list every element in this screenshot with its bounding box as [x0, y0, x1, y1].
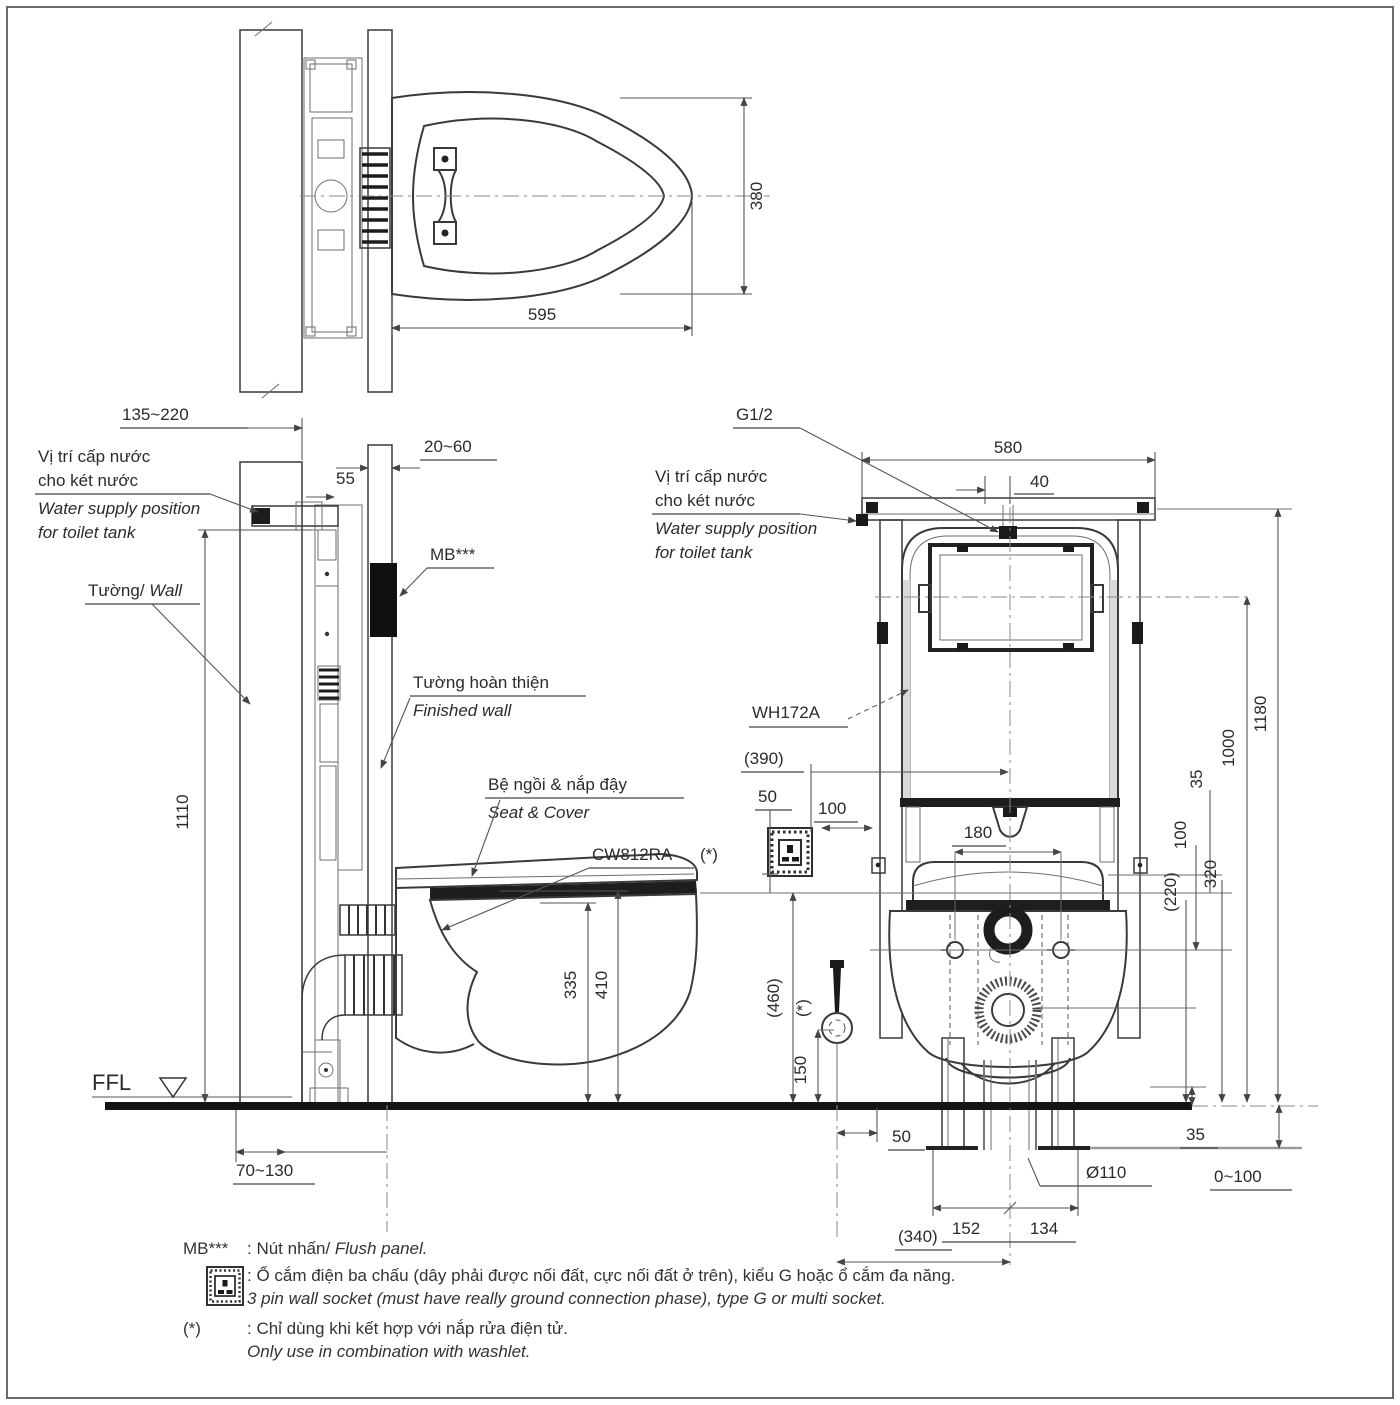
stop-valve [822, 960, 852, 1105]
dim-410: 410 [592, 971, 611, 999]
legend-mb-def-vi: : Nút nhấn/ [247, 1239, 335, 1258]
dim-220: (220) [1161, 872, 1180, 912]
dim-380: 380 [747, 182, 766, 210]
legend-mb-def: : Nút nhấn/ Flush panel. [247, 1238, 1263, 1261]
legend-mb-term: MB*** [183, 1238, 247, 1261]
model-wh172a: WH172A [752, 703, 821, 722]
water-supply-label-side-vi2: cho két nước [38, 471, 139, 490]
wall-break-marks [255, 22, 279, 398]
dim-35-floor: 35 [1186, 1125, 1205, 1144]
legend-star-def-vi: : Chỉ dùng khi kết hợp với nắp rửa điện … [247, 1318, 1263, 1341]
mb-label: MB*** [430, 545, 476, 564]
dim-150: 150 [791, 1056, 810, 1084]
ffl-marker [160, 1078, 186, 1097]
wall-section-plan [240, 30, 302, 392]
dim-35-seat: 35 [1187, 770, 1206, 789]
dim-320: 320 [1201, 860, 1220, 888]
dim-1000: 1000 [1219, 729, 1238, 767]
top-view: 595 380 [240, 22, 770, 398]
dim-50-socket: 50 [758, 787, 777, 806]
drawing-sheet: 595 380 [0, 0, 1400, 1405]
dim-335: 335 [561, 971, 580, 999]
wall-label-en: Wall [145, 581, 184, 600]
dim-134: 134 [1030, 1219, 1058, 1238]
frame-plan [304, 58, 362, 338]
installation-drawing: 595 380 [0, 0, 1400, 1405]
legend-socket-def: : Ổ cắm điện ba chấu (dây phải được nối … [247, 1265, 1263, 1311]
wall-sleeve-plan [360, 148, 390, 248]
dim-460: (460) [764, 978, 783, 1018]
model-cw812ra: CW812RA [592, 845, 673, 864]
finished-wall-side [368, 445, 392, 1105]
dim-580: 580 [994, 438, 1022, 457]
dim-70-130: 70~130 [236, 1161, 293, 1180]
water-supply-label-front-vi2: cho két nước [655, 491, 756, 510]
dim-180: 180 [964, 823, 992, 842]
side-view [240, 445, 697, 1105]
legend-mb-def-en: Flush panel. [335, 1239, 428, 1258]
legend-star-def: : Chỉ dùng khi kết hợp với nắp rửa điện … [247, 1318, 1263, 1364]
power-socket-icon [768, 828, 812, 876]
front-view [768, 498, 1155, 1150]
dim-dia110: Ø110 [1086, 1163, 1126, 1182]
seat-cover-label-vi: Bệ ngồi & nắp đậy [488, 775, 627, 794]
water-supply-label-front-en1: Water supply position [655, 519, 817, 538]
legend-socket-def-vi: : Ổ cắm điện ba chấu (dây phải được nối … [247, 1265, 1263, 1288]
power-socket-legend-icon [183, 1265, 247, 1314]
legend-star-def-en: Only use in combination with washlet. [247, 1341, 1263, 1364]
finished-wall-plan [368, 30, 392, 392]
wall-label: Tường/ Wall [88, 581, 183, 600]
dim-595: 595 [528, 305, 556, 324]
wall-section-side [240, 462, 302, 1105]
floor [105, 1102, 1318, 1148]
star-valve: (*) [793, 999, 812, 1017]
water-supply-label-front-vi1: Vị trí cấp nước [655, 467, 768, 486]
dim-100-socket: 100 [818, 799, 846, 818]
water-supply-label-front-en2: for toilet tank [655, 543, 754, 562]
finished-wall-label-en: Finished wall [413, 701, 512, 720]
tank-inlet [999, 526, 1017, 539]
dim-finish-range: 20~60 [424, 437, 472, 456]
legend-socket-def-en: 3 pin wall socket (must have really grou… [247, 1288, 1263, 1311]
legend-row-star: (*) : Chỉ dùng khi kết hợp với nắp rửa đ… [183, 1318, 1263, 1364]
finished-wall-label-vi: Tường hoàn thiện [413, 673, 549, 692]
floor-line [105, 1102, 1192, 1110]
legend-row-socket: : Ổ cắm điện ba chấu (dây phải được nối … [183, 1265, 1263, 1314]
water-supply-label-side-en2: for toilet tank [38, 523, 137, 542]
dim-wall-range: 135~220 [122, 405, 189, 424]
legend-star-term: (*) [183, 1318, 247, 1341]
legend-row-flush-panel: MB*** : Nút nhấn/ Flush panel. [183, 1238, 1263, 1261]
dim-100-right: 100 [1171, 821, 1190, 849]
water-supply-label-side-en1: Water supply position [38, 499, 200, 518]
dim-50-floor: 50 [892, 1127, 911, 1146]
dim-55: 55 [336, 469, 355, 488]
dim-1110: 1110 [173, 794, 192, 829]
dim-40: 40 [1030, 472, 1049, 491]
seat-cover-label-en: Seat & Cover [488, 803, 590, 822]
legend: MB*** : Nút nhấn/ Flush panel. : Ổ cắm đ… [183, 1238, 1263, 1368]
toilet-front [889, 862, 1126, 1084]
star-note: (*) [700, 845, 718, 864]
dim-390: (390) [744, 749, 784, 768]
ffl-label: FFL [92, 1070, 131, 1095]
flush-panel-side [370, 563, 397, 637]
g12-label: G1/2 [736, 405, 773, 424]
wall-label-vi: Tường/ [88, 581, 145, 600]
dim-0-100: 0~100 [1214, 1167, 1262, 1186]
dim-1180: 1180 [1251, 696, 1270, 733]
water-supply-label-side-vi1: Vị trí cấp nước [38, 447, 151, 466]
dim-152: 152 [952, 1219, 980, 1238]
pipes-side [302, 905, 402, 1105]
